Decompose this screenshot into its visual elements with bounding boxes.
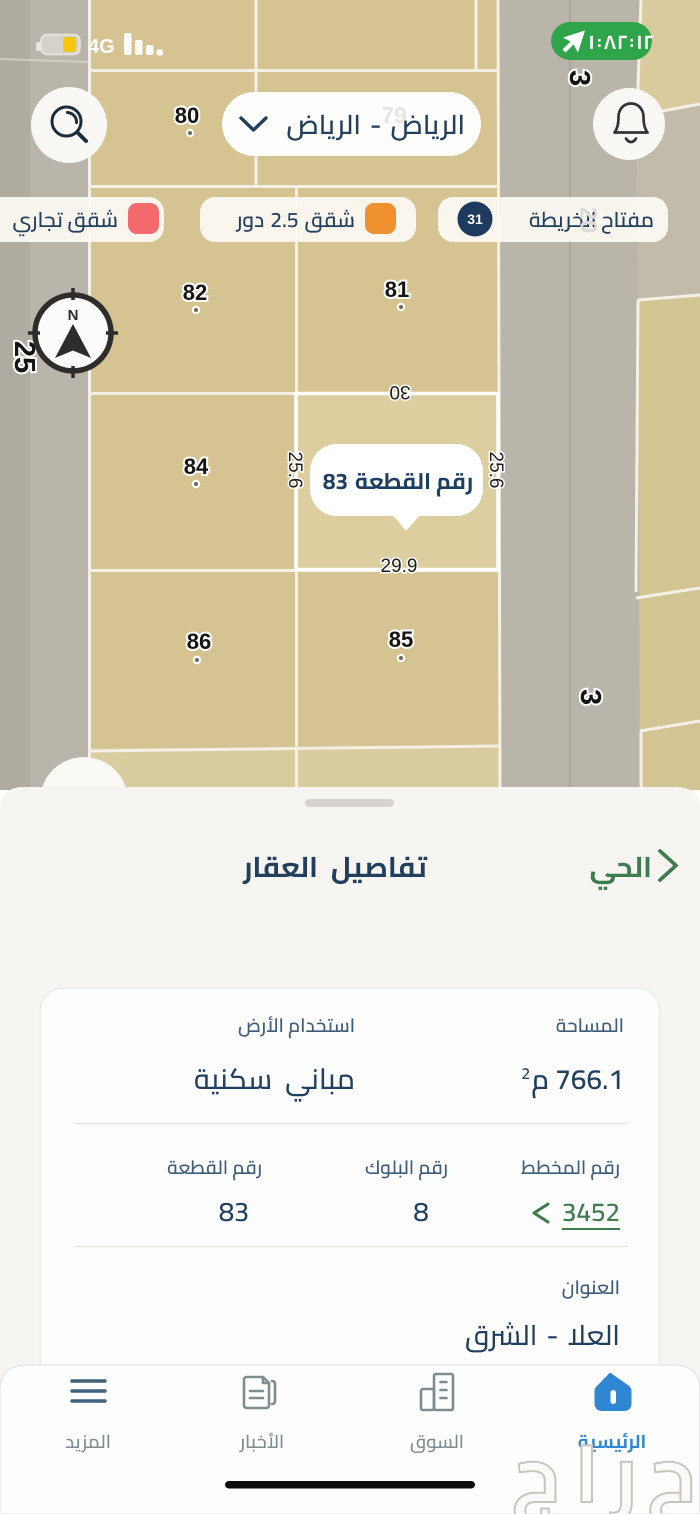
svg-text:85: 85	[389, 627, 413, 652]
svg-text:82: 82	[183, 280, 207, 305]
svg-text:25.6: 25.6	[485, 452, 506, 489]
svg-text:30: 30	[389, 381, 410, 402]
svg-text:80: 80	[175, 103, 199, 128]
svg-text:86: 86	[187, 629, 211, 654]
svg-text:4G: 4G	[88, 36, 115, 58]
svg-text:29.9: 29.9	[381, 556, 418, 577]
svg-text:31: 31	[467, 211, 483, 227]
svg-text:20: 20	[575, 207, 602, 234]
svg-text:3: 3	[563, 70, 595, 86]
svg-text:81: 81	[385, 277, 409, 302]
svg-text:79: 79	[381, 102, 407, 128]
svg-text:N: N	[68, 307, 79, 324]
svg-text:3: 3	[574, 689, 606, 705]
svg-text:25.6: 25.6	[284, 452, 305, 489]
svg-text:84: 84	[184, 454, 209, 479]
